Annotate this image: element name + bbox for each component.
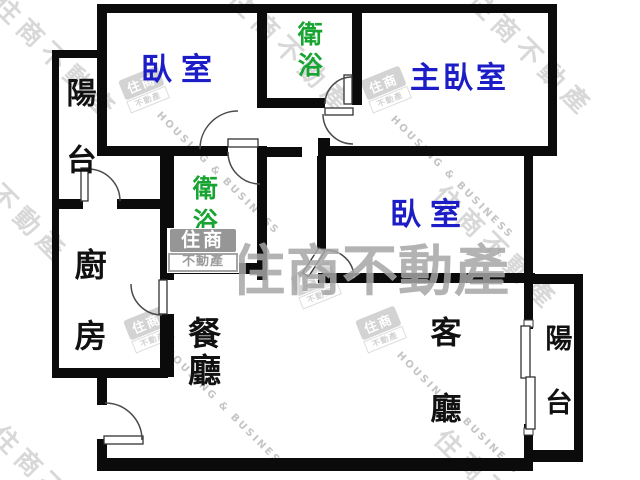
room-label-dining: 餐廳 bbox=[184, 316, 219, 390]
sliding-door bbox=[521, 320, 535, 435]
wall bbox=[548, 4, 557, 156]
door-leaf bbox=[159, 280, 167, 314]
wall bbox=[257, 4, 267, 108]
brand-logo: 住商 不動產 bbox=[167, 228, 239, 273]
wall bbox=[160, 314, 174, 377]
wall bbox=[97, 4, 557, 13]
door-leaf bbox=[228, 139, 258, 147]
wall bbox=[117, 199, 161, 209]
center-brand-watermark: 住商不動產 bbox=[230, 226, 510, 306]
wall bbox=[524, 146, 533, 283]
wall bbox=[318, 146, 557, 156]
door-leaf bbox=[325, 108, 353, 115]
brand-logo-bottom: 不動產 bbox=[168, 253, 238, 272]
room-label-bathroom-top: 衛浴 bbox=[295, 21, 321, 83]
door-arc bbox=[131, 284, 162, 315]
room-label-kitchen: 廚房 bbox=[71, 248, 105, 390]
wall bbox=[97, 458, 533, 471]
wall bbox=[52, 50, 59, 378]
door-leaf bbox=[344, 75, 352, 104]
wall bbox=[97, 4, 107, 156]
room-label-bedroom-1: 臥室 bbox=[141, 54, 221, 87]
wall bbox=[574, 274, 583, 462]
floor-plan: 住商不動產 住商不動產 住商不動產 住商不動產 住商不動產 住商不動產 住商不動… bbox=[0, 0, 640, 480]
brand-logo-top: 住商 bbox=[170, 229, 236, 252]
wall bbox=[257, 98, 325, 108]
door-arc bbox=[228, 152, 260, 184]
door-arc bbox=[105, 403, 142, 440]
wall bbox=[352, 4, 362, 105]
door-leaf bbox=[104, 436, 143, 444]
room-label-balcony-left: 陽台 bbox=[62, 77, 94, 211]
wall bbox=[257, 147, 302, 157]
room-label-master-bedroom: 主臥室 bbox=[410, 63, 509, 95]
room-label-balcony-right: 陽台 bbox=[541, 324, 569, 452]
room-label-living: 客廳 bbox=[426, 316, 459, 468]
